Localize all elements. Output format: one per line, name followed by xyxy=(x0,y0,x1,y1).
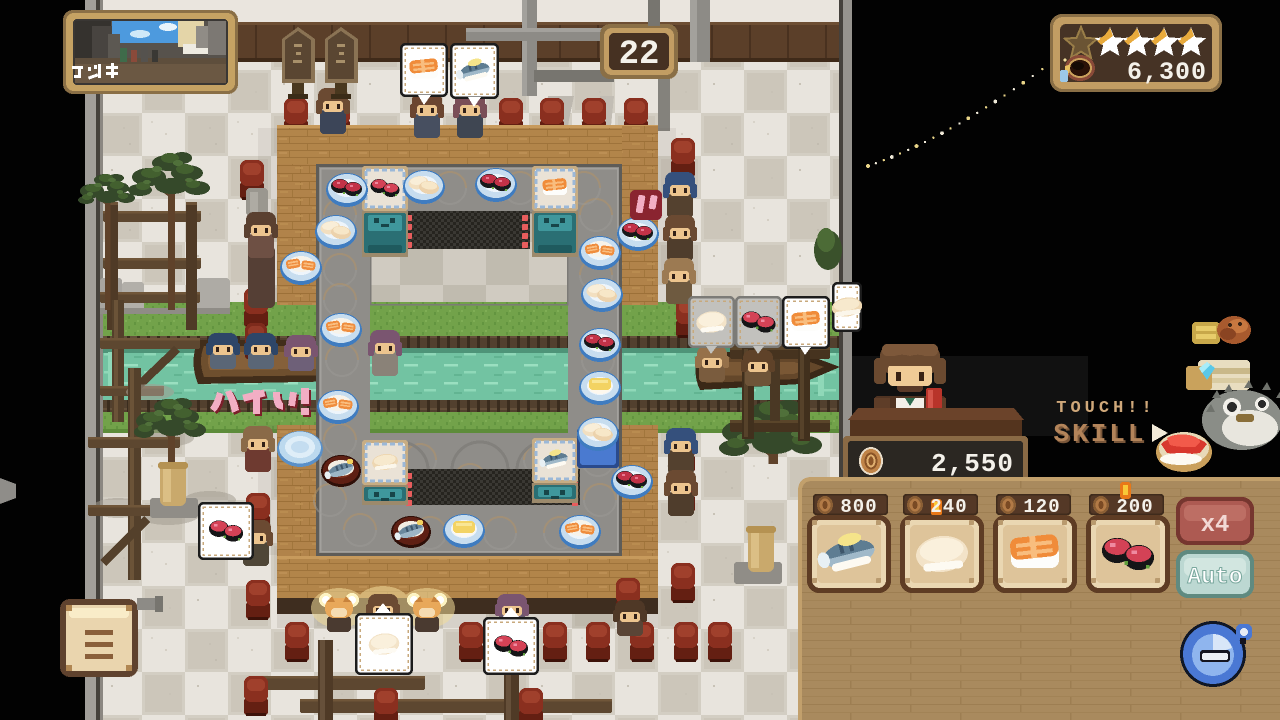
svg-text:240: 240 xyxy=(930,496,967,518)
svg-text:x4: x4 xyxy=(1201,512,1230,539)
svg-text:TOUCH!!: TOUCH!! xyxy=(1056,399,1155,418)
svg-text:22: 22 xyxy=(619,36,660,74)
svg-text:Auto: Auto xyxy=(1187,564,1242,590)
svg-text:120: 120 xyxy=(1023,496,1060,518)
svg-text:2,550: 2,550 xyxy=(931,449,1014,479)
svg-text:800: 800 xyxy=(840,496,877,518)
svg-text:200: 200 xyxy=(1116,496,1153,518)
svg-text:SKILL: SKILL xyxy=(1053,419,1146,449)
svg-text:6,300: 6,300 xyxy=(1127,58,1207,87)
